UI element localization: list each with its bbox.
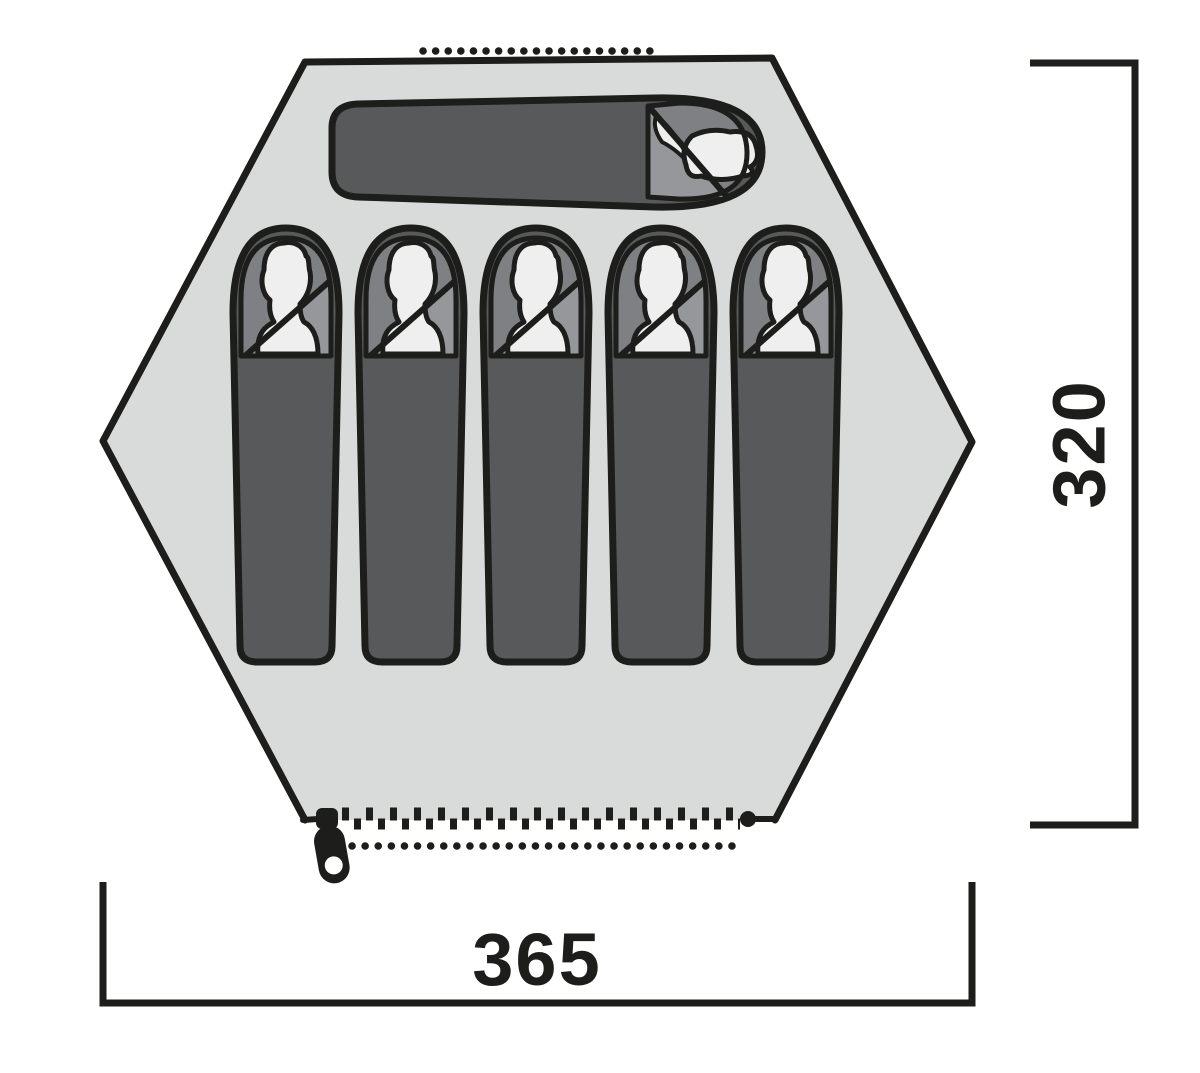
height-dimension-label: 320	[1038, 379, 1121, 508]
sleeping-bag-1	[233, 228, 339, 662]
sleeping-bag-5	[733, 228, 839, 662]
zipper-slider	[316, 808, 338, 829]
sleeping-bag-2	[358, 228, 464, 662]
horizontal-sleeping-bag	[332, 98, 762, 207]
tent-floorplan-diagram: 320 365	[0, 0, 1200, 1073]
sleeping-bag-3	[483, 228, 589, 662]
zipper-left-tail	[303, 819, 318, 820]
zipper-pull	[312, 823, 353, 886]
tent-floorplan-svg: 320 365	[0, 0, 1200, 1073]
width-dimension-label: 365	[472, 918, 601, 1001]
sleeping-bag-4	[608, 228, 714, 662]
zipper-pull-body	[312, 823, 353, 886]
